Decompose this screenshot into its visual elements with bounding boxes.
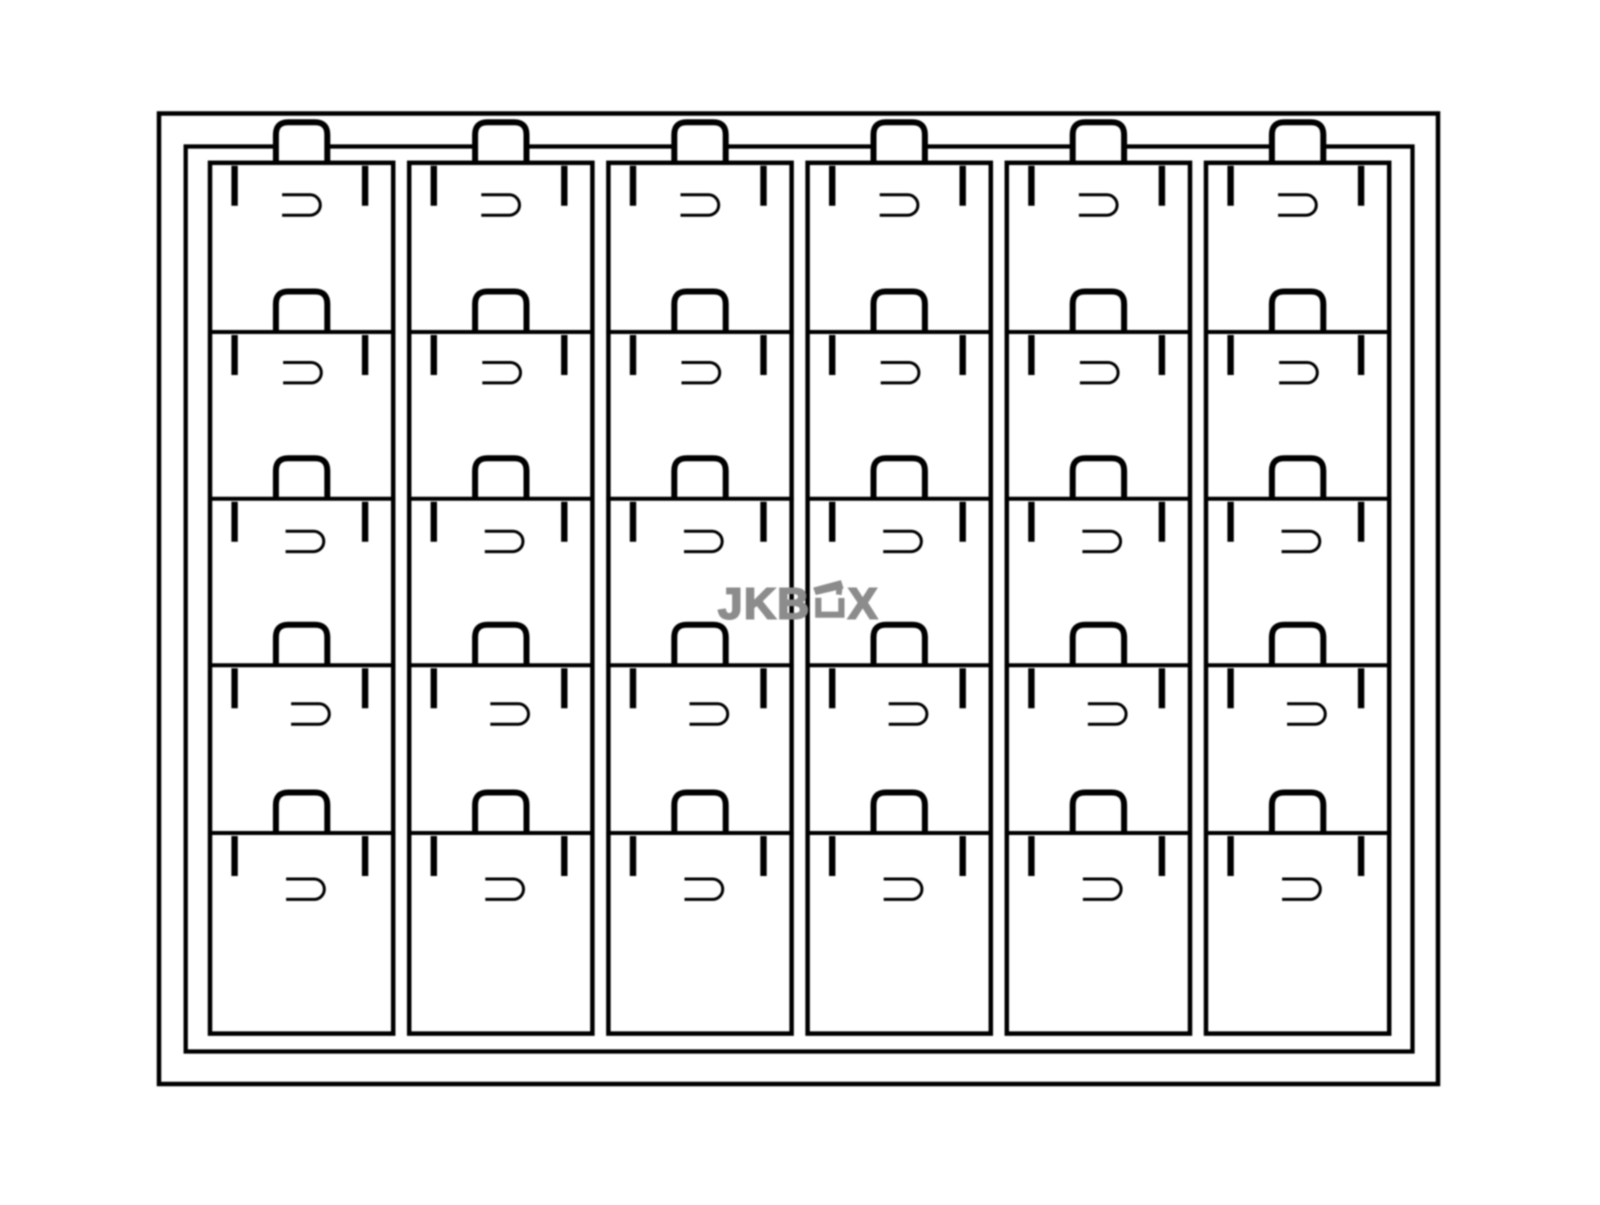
svg-text:X: X: [848, 580, 877, 629]
svg-text:JKB: JKB: [718, 580, 811, 629]
